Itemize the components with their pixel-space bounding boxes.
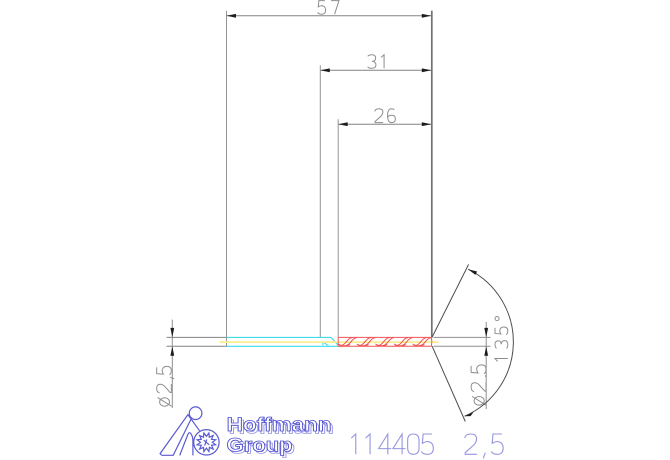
svg-text:Group: Group	[227, 434, 293, 456]
svg-text:Hoffmann: Hoffmann	[227, 414, 332, 436]
